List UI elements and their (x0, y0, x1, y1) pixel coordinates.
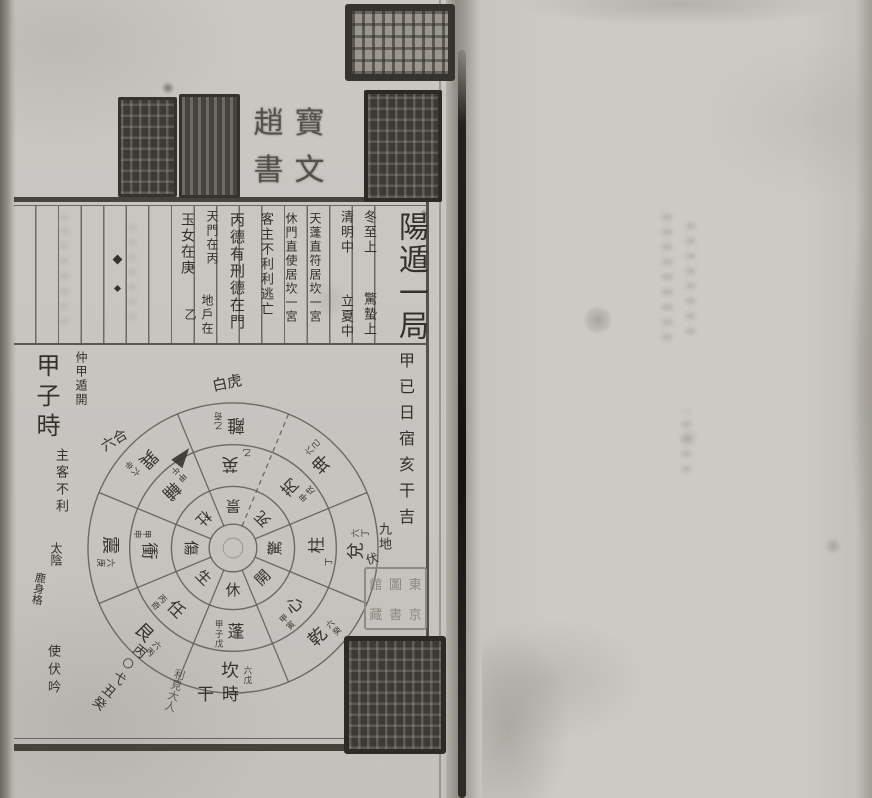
bleed-through-text-ghost (686, 214, 695, 334)
column-upper-text: 天門在丙 (199, 210, 221, 266)
wheel-sector-坎: 休蓬甲子戊坎六戊 (215, 581, 253, 685)
seal-char: 寶 (289, 96, 330, 143)
label-shigan: 時干 (219, 685, 241, 733)
annotation-jiudi: 九地 (374, 522, 393, 552)
svg-text:坎: 坎 (221, 660, 239, 681)
header-column-yunv: 玉女在庚 (175, 210, 197, 342)
annotation-shifuyin1: 使伏吟 (43, 644, 62, 698)
svg-text:兌: 兌 (345, 542, 366, 560)
svg-text:柱: 柱 (306, 536, 326, 553)
column-lower-text: 地戶在乙 (194, 288, 216, 342)
book-left-edge-shadow (0, 0, 16, 798)
svg-text:六戊: 六戊 (244, 666, 253, 685)
header-column-bingde: 丙德有刑德在門 (226, 210, 248, 342)
svg-text:衝: 衝 (140, 543, 160, 560)
seal-char: 京 (405, 599, 425, 629)
svg-text:英: 英 (221, 455, 238, 475)
svg-text:驚: 驚 (266, 540, 284, 555)
seal-char: 東 (405, 569, 425, 599)
svg-text:杜: 杜 (192, 507, 215, 530)
seal-four-characters: 趙 寶 書 文 (248, 96, 330, 190)
wheel-sector-兌: 驚柱丁兌六丁 (266, 528, 370, 566)
seal-top-dark (345, 4, 455, 81)
seal-char: 趙 (248, 96, 289, 143)
column-text: 丙德有刑德在門 (226, 212, 248, 331)
seal-tall-dark (364, 90, 442, 202)
column-upper-text: 冬至上 (356, 210, 378, 255)
svg-text:甲申: 甲申 (133, 530, 152, 538)
right-page-edge-shadow (856, 0, 872, 798)
seal-pair-right (179, 94, 240, 198)
right-page-blank (480, 0, 872, 798)
svg-text:開: 開 (251, 566, 274, 589)
header-column-tianmen: 天門在丙地戶在乙 (199, 210, 221, 342)
wheel-sector-震: 傷衝甲申震六庚 (96, 530, 200, 568)
column-lower-text: 立夏中 (333, 294, 355, 339)
seal-char: 館 (366, 569, 386, 599)
column-text: 休門直使居坎一宮 (278, 212, 300, 324)
book-gutter-line (458, 50, 466, 798)
svg-text:震: 震 (100, 536, 121, 554)
column-upper-text: 清明中 (333, 210, 355, 255)
seal-char: 書 (248, 143, 289, 190)
svg-text:傷: 傷 (182, 541, 200, 556)
seal-char: 書 (386, 599, 406, 629)
column-text: 客主不利利逃亡 (253, 212, 275, 317)
bleed-through-text-ghost (682, 410, 691, 472)
header-column-kezhu: 客主不利利逃亡 (253, 210, 275, 342)
svg-text:休: 休 (226, 581, 241, 599)
svg-text:乙: 乙 (243, 448, 251, 458)
bleed-through-text-ghost (662, 208, 672, 340)
seal-char: 文 (289, 143, 330, 190)
svg-text:乙奇: 乙奇 (213, 411, 222, 430)
column-text: 天蓬直符居坎一宮 (302, 212, 324, 324)
header-column-xiumen: 休門直使居坎一宮 (278, 210, 300, 342)
svg-text:生: 生 (192, 566, 215, 589)
annotation-taiyin: 太陰 (48, 542, 65, 566)
svg-text:六丁: 六丁 (351, 528, 370, 537)
note-jiazi-hour: 甲子時 (34, 353, 64, 453)
svg-text:丁: 丁 (323, 558, 333, 566)
seal-char: 圖 (386, 569, 406, 599)
header-column-dongzhi: 冬至上驚蟄上 (356, 210, 378, 342)
note-zhuke-buli: 主客不利 (52, 448, 70, 528)
seal-pair-left (118, 97, 177, 197)
svg-text:蓬: 蓬 (228, 621, 245, 641)
svg-text:死: 死 (251, 507, 274, 530)
seal-char: 藏 (366, 599, 386, 629)
column-text: 玉女在庚 (175, 212, 197, 276)
svg-text:景: 景 (226, 497, 241, 515)
chart-title: 陽遁一局 (390, 209, 432, 345)
header-bottom-rule (14, 343, 428, 345)
seal-bottom-dark (344, 636, 446, 754)
svg-text:甲子戊: 甲子戊 (215, 619, 224, 648)
note-jiayi-day: 甲已日宿亥干吉 (395, 352, 417, 552)
book-scan: 陽遁一局 冬至上驚蟄上清明中立夏中天蓬直符居坎一宮休門直使居坎一宮客主不利利逃亡… (0, 0, 872, 798)
svg-text:六庚: 六庚 (96, 559, 115, 568)
svg-text:離: 離 (227, 415, 245, 436)
wheel-sector-坤: 死芮甲戌坤六己 (242, 437, 342, 537)
header-column-tianpeng: 天蓬直符居坎一宮 (302, 210, 324, 342)
wheel-sector-離: 景英乙離乙奇 (213, 411, 251, 515)
header-column-qingming: 清明中立夏中 (333, 210, 355, 342)
column-lower-text: 驚蟄上 (356, 292, 378, 337)
seal-library-tokyo: 館 圖 東 藏 書 京 (364, 567, 427, 630)
